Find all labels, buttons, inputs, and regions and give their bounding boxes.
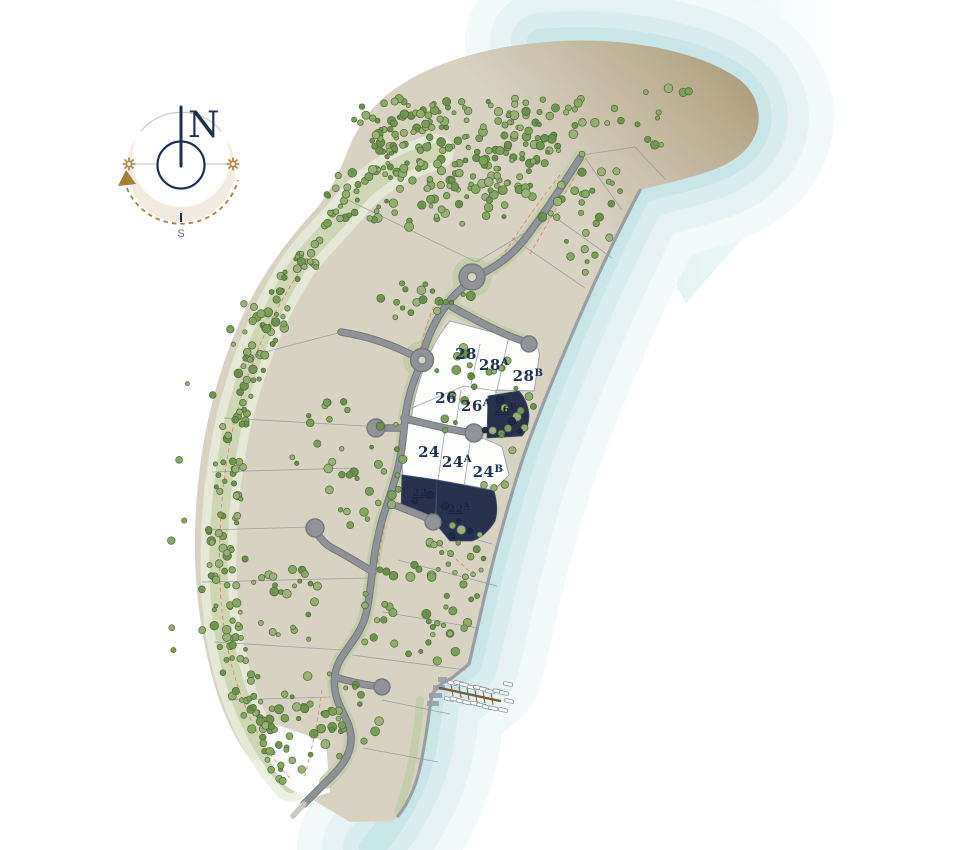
compass-gear-left-icon [123, 158, 136, 171]
compass-north-label: N [188, 105, 220, 146]
culdesac-22-south [425, 514, 441, 530]
lot-26-label: 26 [435, 389, 457, 407]
entry-road-stub [293, 804, 304, 816]
culdesac-west-2 [306, 519, 324, 537]
lot-28-label: 28 [455, 345, 477, 363]
culdesac-28B [521, 336, 537, 352]
site-plan-page: 28 28A 28B 26 26A 26B 24 24A 24B 22 22A … [0, 0, 979, 850]
lot-24-label: 24 [418, 443, 440, 461]
compass-rose: N S [118, 105, 239, 240]
lot-22-label: 22 [412, 487, 428, 499]
compass-south-label: S [177, 228, 184, 240]
compass-gear-right-icon [227, 158, 240, 171]
culdesac-southeast [374, 679, 390, 695]
culdesac-26-east [465, 424, 483, 442]
site-plan-map: 28 28A 28B 26 26A 26B 24 24A 24B 22 22A … [0, 0, 979, 850]
